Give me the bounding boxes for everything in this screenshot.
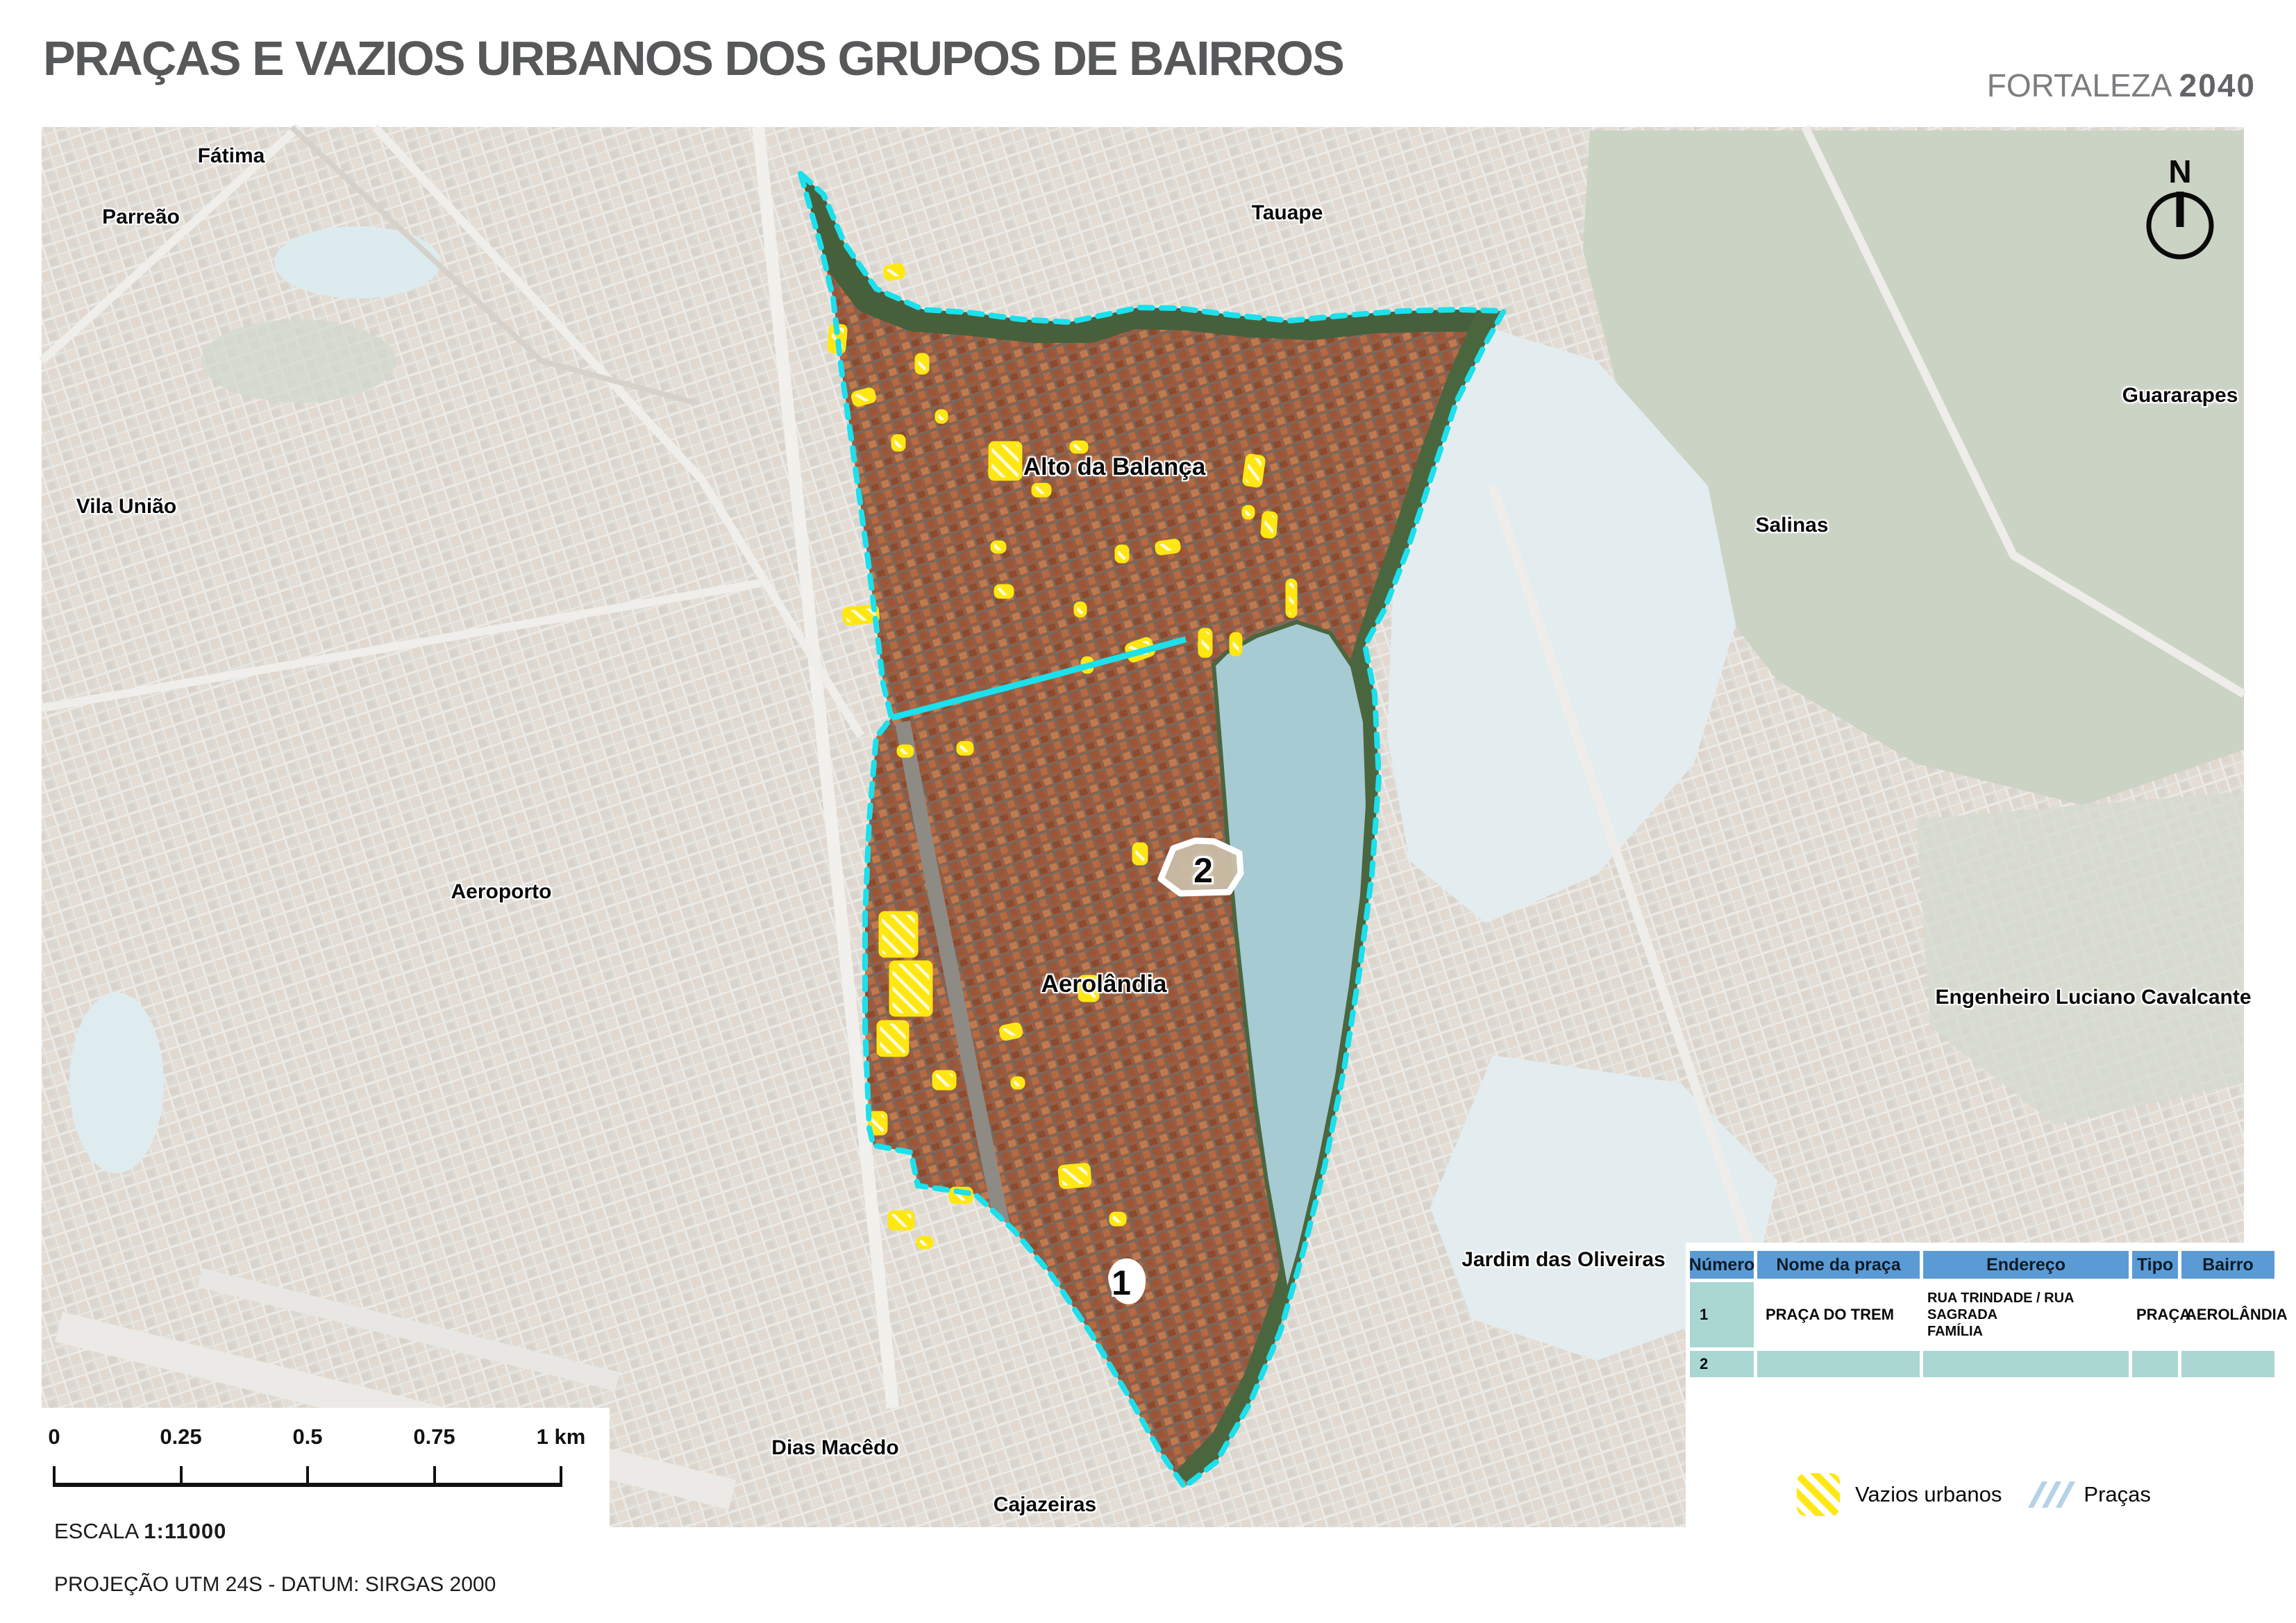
scale-tick [53, 1466, 56, 1487]
vazio-urbano-patch [889, 1212, 913, 1229]
scale-tick-label: 1 km [537, 1424, 586, 1449]
vazio-urbano-patch [1287, 580, 1296, 616]
vazio-urbano-patch [891, 962, 931, 1015]
vazio-urbano-patch [1243, 507, 1253, 518]
vazios-urbanos-label: Vazios urbanos [1855, 1482, 2002, 1507]
vazio-urbano-patch [1156, 540, 1180, 554]
col-header-nome: Nome da praça [1757, 1251, 1920, 1279]
scale-tick-label: 0.25 [160, 1424, 201, 1449]
scale-tick-label: 0 [48, 1424, 60, 1449]
scale-value: 1:11000 [144, 1519, 226, 1543]
vazio-urbano-patch [992, 542, 1005, 552]
vazio-urbano-patch [1000, 1023, 1021, 1039]
legend: Vazios urbanos Praças [1797, 1473, 2151, 1516]
table-row: 2 [1690, 1351, 2254, 1377]
vazio-urbano-patch [1033, 485, 1050, 496]
vazio-urbano-patch [1075, 603, 1085, 616]
col-header-bairro: Bairro [2181, 1251, 2274, 1279]
projection-note: PROJEÇÃO UTM 24S - DATUM: SIRGAS 2000 [54, 1573, 496, 1597]
vazio-urbano-patch [898, 746, 912, 756]
col-header-tipo: Tipo [2132, 1251, 2178, 1279]
scale-prefix: ESCALA [54, 1519, 144, 1543]
cell-numero: 1 [1690, 1282, 1754, 1347]
vazio-urbano-patch [893, 436, 904, 450]
vazio-urbano-patch [1116, 546, 1128, 562]
cell-bairro: AEROLÂNDIA [2181, 1282, 2274, 1347]
pracas-hatch-icon [2035, 1481, 2068, 1508]
scale-tick-label: 0.5 [292, 1424, 322, 1449]
scale-tick [306, 1466, 309, 1487]
scale-tick [180, 1466, 183, 1487]
vazio-urbano-patch [934, 1072, 955, 1088]
vazio-urbano-patch [918, 1238, 932, 1247]
cell-nome [1757, 1351, 1920, 1377]
pond-bottomleft [69, 993, 164, 1173]
cell-bairro [2181, 1351, 2274, 1377]
vazio-urbano-patch [1200, 630, 1211, 656]
cell-tipo: PRAÇA [2132, 1282, 2178, 1347]
vazio-urbano-patch [996, 586, 1012, 597]
lake-topleft [274, 226, 441, 298]
brand-logo: FORTALEZA 2040 [1987, 67, 2256, 104]
col-header-numero: Número [1690, 1251, 1754, 1279]
cell-endereco: RUA TRINDADE / RUA SAGRADA FAMÍLIA [1923, 1282, 2129, 1347]
vazio-urbano-patch [1012, 1078, 1023, 1088]
vazio-urbano-patch [937, 411, 946, 422]
map-sheet: PRAÇAS E VAZIOS URBANOS DOS GRUPOS DE BA… [0, 0, 2296, 1623]
vazio-urbano-patch [1231, 634, 1241, 655]
vazio-urbano-patch [1071, 442, 1087, 452]
faded-park [201, 319, 396, 403]
scale-bar: 00.250.50.751 km [54, 1424, 561, 1508]
vazio-urbano-patch [1111, 1213, 1125, 1225]
table-row: 1 PRAÇA DO TREM RUA TRINDADE / RUA SAGRA… [1690, 1282, 2254, 1347]
vazio-urbano-patch [916, 355, 928, 373]
vazio-urbano-patch [1134, 844, 1146, 864]
praca-2-polygon [1161, 841, 1241, 893]
pracas-label: Praças [2084, 1482, 2150, 1507]
praca-table: Número Nome da praça Endereço Tipo Bairr… [1690, 1251, 2254, 1381]
vazio-urbano-patch [1243, 455, 1264, 487]
vazio-urbano-patch [1059, 1164, 1090, 1188]
page-title: PRAÇAS E VAZIOS URBANOS DOS GRUPOS DE BA… [43, 31, 1343, 86]
scale-ratio: ESCALA 1:11000 [54, 1519, 226, 1544]
vazio-urbano-patch [885, 264, 905, 280]
cell-nome: PRAÇA DO TREM [1757, 1282, 1920, 1347]
cell-tipo [2132, 1351, 2178, 1377]
cell-endereco [1923, 1351, 2129, 1377]
brand-name: FORTALEZA [1987, 67, 2170, 103]
vazio-urbano-patch [990, 443, 1021, 479]
vazio-urbano-patch [880, 913, 916, 956]
table-header-row: Número Nome da praça Endereço Tipo Bairr… [1690, 1251, 2254, 1279]
vazios-urbanos-swatch-icon [1797, 1473, 1840, 1516]
vazio-urbano-patch [1262, 512, 1277, 537]
scale-tick [560, 1466, 562, 1487]
praca-table-panel: Número Nome da praça Endereço Tipo Bairr… [1686, 1243, 2296, 1623]
scale-tick-label: 0.75 [413, 1424, 455, 1449]
scale-tick [433, 1466, 436, 1487]
vazio-urbano-patch [1080, 977, 1098, 1000]
cell-numero: 2 [1690, 1351, 1754, 1377]
col-header-endereco: Endereço [1923, 1251, 2129, 1279]
vazio-urbano-patch [958, 743, 972, 754]
brand-year: 2040 [2179, 67, 2256, 103]
vazio-urbano-patch [878, 1022, 907, 1055]
